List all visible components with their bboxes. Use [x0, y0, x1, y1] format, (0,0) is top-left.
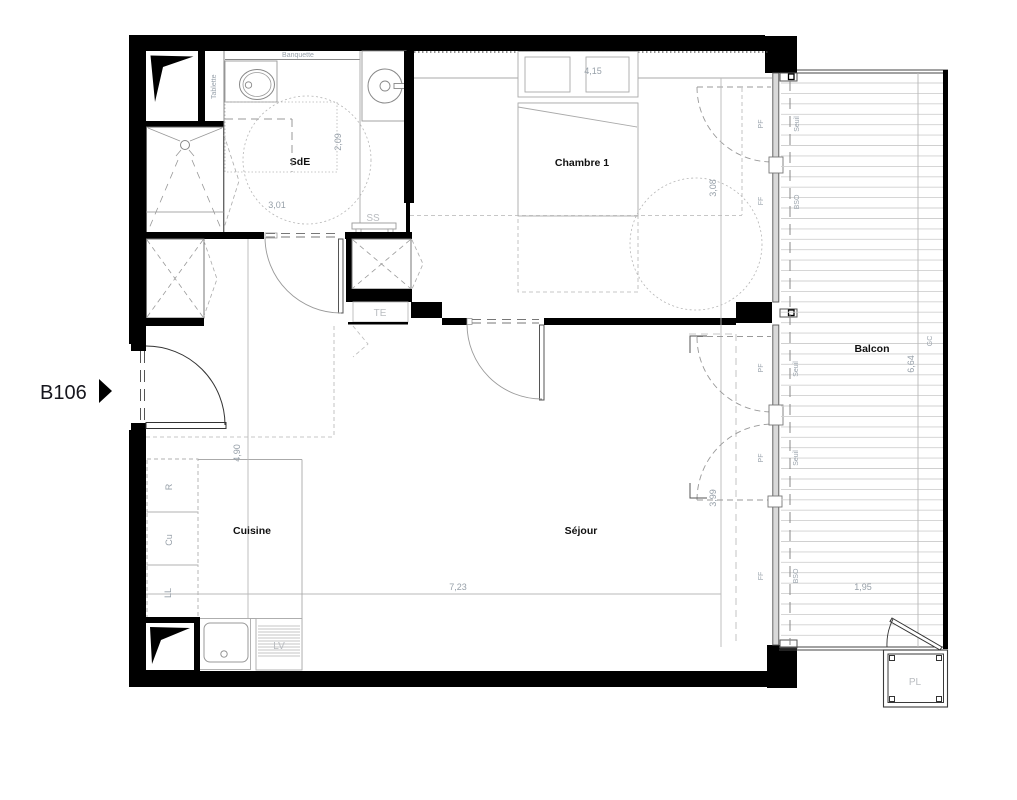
svg-text:3,08: 3,08 [708, 179, 718, 197]
svg-text:2,09: 2,09 [333, 133, 343, 151]
svg-text:BSO: BSO [793, 568, 800, 583]
svg-text:Cu: Cu [164, 534, 174, 546]
svg-text:4,15: 4,15 [584, 66, 602, 76]
svg-text:Seuil: Seuil [794, 116, 801, 132]
svg-text:LL: LL [163, 588, 173, 598]
svg-text:Chambre 1: Chambre 1 [555, 157, 609, 169]
svg-text:3,01: 3,01 [268, 200, 286, 210]
svg-text:PF: PF [758, 120, 765, 129]
svg-text:Seuil: Seuil [793, 450, 800, 466]
svg-text:GC: GC [927, 336, 934, 347]
svg-text:PF: PF [758, 454, 765, 463]
svg-text:Cuisine: Cuisine [233, 525, 271, 537]
svg-text:7,23: 7,23 [449, 582, 467, 592]
svg-text:BSO: BSO [794, 194, 801, 209]
svg-text:B106: B106 [40, 382, 87, 404]
svg-text:SdE: SdE [290, 156, 310, 168]
svg-text:SS: SS [366, 213, 380, 224]
svg-text:Banquette: Banquette [282, 52, 314, 59]
svg-text:PL: PL [909, 677, 922, 688]
svg-text:PF: PF [758, 364, 765, 373]
svg-text:FF: FF [758, 197, 765, 206]
svg-text:LV: LV [273, 641, 285, 652]
svg-text:R: R [164, 483, 174, 490]
svg-text:Tablette: Tablette [211, 74, 218, 99]
svg-text:Seuil: Seuil [793, 361, 800, 377]
svg-text:FF: FF [758, 572, 765, 581]
svg-text:4,90: 4,90 [232, 444, 242, 462]
svg-text:1,95: 1,95 [854, 582, 872, 592]
svg-text:Balcon: Balcon [854, 343, 889, 355]
svg-text:3,99: 3,99 [708, 489, 718, 507]
svg-text:Séjour: Séjour [565, 525, 598, 537]
svg-text:6,64: 6,64 [906, 355, 916, 373]
svg-text:TE: TE [374, 308, 387, 319]
